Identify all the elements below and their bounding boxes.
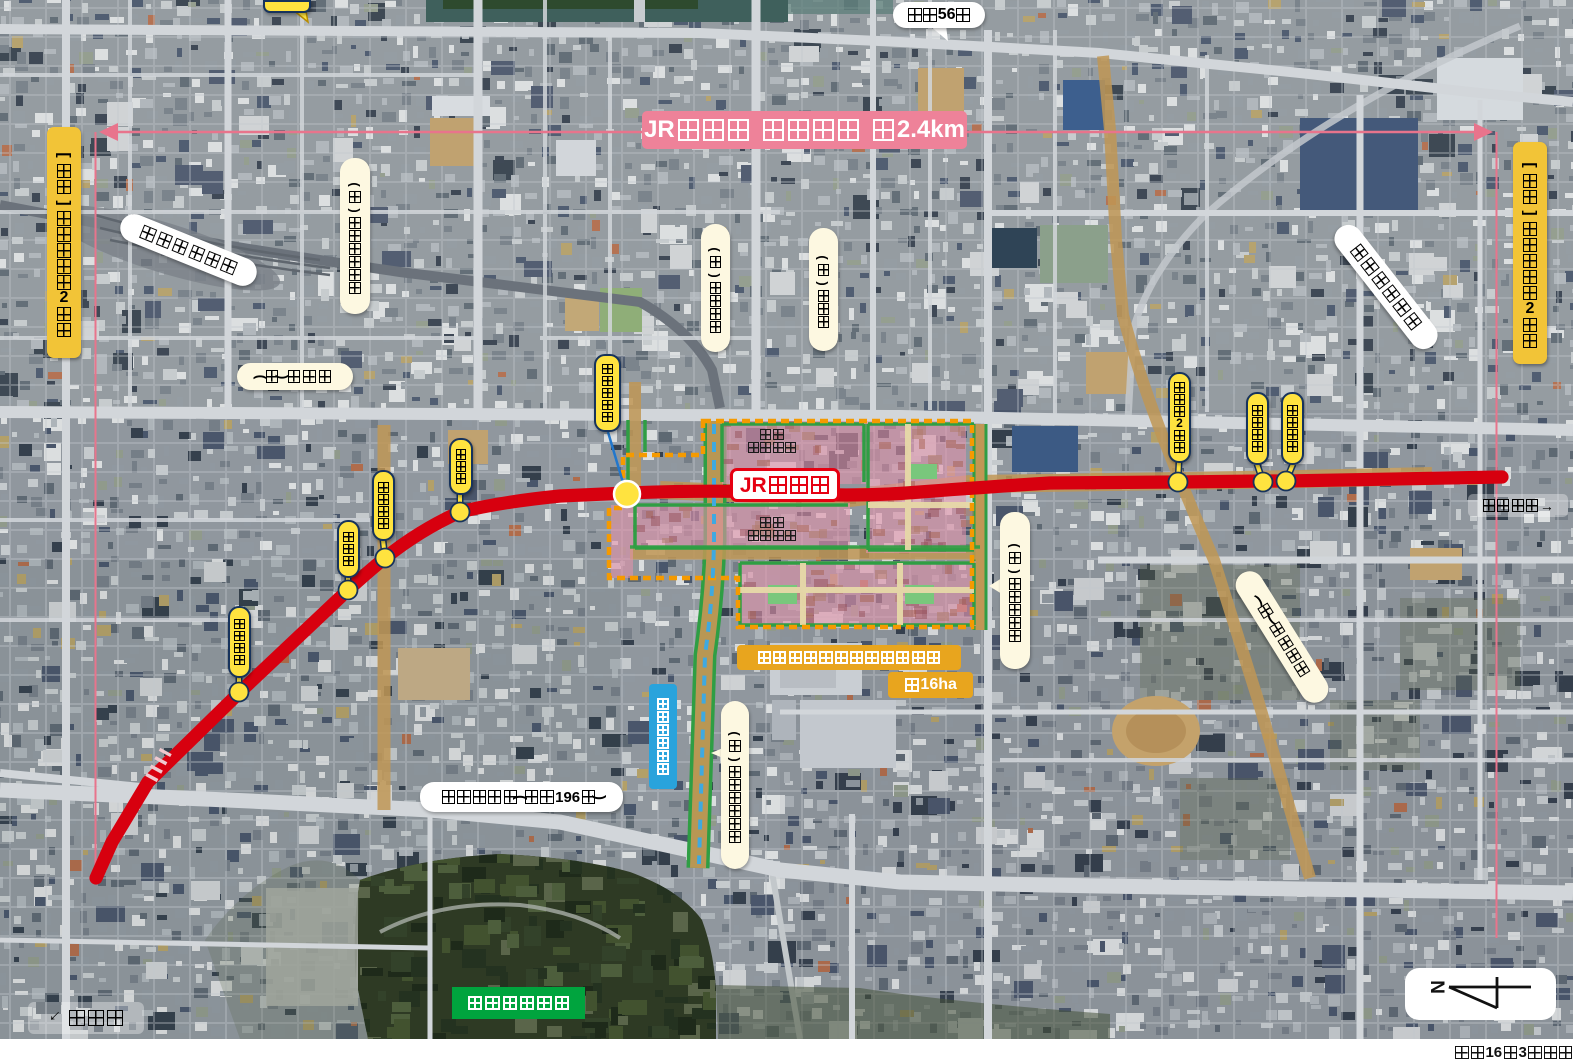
svg-text:N: N [1429, 980, 1450, 994]
